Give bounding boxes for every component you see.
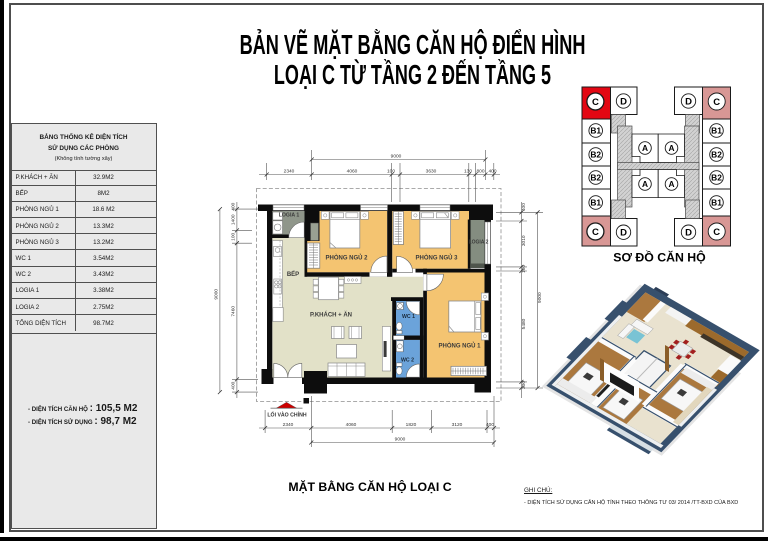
svg-text:PHÒNG NGỦ 3: PHÒNG NGỦ 3 <box>415 254 458 262</box>
svg-text:C: C <box>592 97 599 108</box>
svg-text:LOGIA 2: LOGIA 2 <box>469 240 489 246</box>
svg-text:400: 400 <box>231 381 237 389</box>
svg-text:400: 400 <box>486 422 494 428</box>
svg-text:A: A <box>642 179 648 189</box>
svg-text:P.KHÁCH + ĂN: P.KHÁCH + ĂN <box>310 312 352 319</box>
svg-text:A: A <box>642 143 648 153</box>
svg-text:1820: 1820 <box>406 422 417 428</box>
svg-text:LOGIA 1: LOGIA 1 <box>279 213 300 219</box>
svg-text:B1: B1 <box>590 198 601 208</box>
svg-text:100: 100 <box>387 169 395 175</box>
svg-text:WC 2: WC 2 <box>401 358 414 364</box>
svg-text:D: D <box>620 96 627 107</box>
svg-text:PHÒNG NGỦ 2: PHÒNG NGỦ 2 <box>325 254 368 262</box>
svg-text:PHÒNG NGỦ 1: PHÒNG NGỦ 1 <box>438 342 481 350</box>
svg-text:D: D <box>685 96 692 107</box>
svg-text:B2: B2 <box>590 150 601 160</box>
svg-text:4060: 4060 <box>346 422 357 428</box>
svg-text:7460: 7460 <box>231 306 237 317</box>
svg-text:WC 1: WC 1 <box>402 314 415 320</box>
svg-text:B2: B2 <box>711 150 722 160</box>
svg-text:100: 100 <box>231 232 237 240</box>
svg-text:C: C <box>713 227 720 238</box>
svg-text:A: A <box>668 143 674 153</box>
svg-text:1400: 1400 <box>231 214 237 225</box>
svg-text:800: 800 <box>476 169 484 175</box>
svg-text:300: 300 <box>521 381 527 389</box>
svg-text:400: 400 <box>488 169 496 175</box>
svg-text:A: A <box>668 179 674 189</box>
svg-text:C: C <box>713 97 720 108</box>
svg-text:5480: 5480 <box>521 318 527 329</box>
svg-text:9000: 9000 <box>395 437 406 443</box>
svg-text:BẾP: BẾP <box>287 271 299 278</box>
svg-text:3630: 3630 <box>426 169 437 175</box>
svg-text:B2: B2 <box>590 173 601 183</box>
svg-text:LỐI VÀO CHÍNH: LỐI VÀO CHÍNH <box>267 410 306 418</box>
svg-text:D: D <box>685 228 692 239</box>
svg-text:B1: B1 <box>590 126 601 136</box>
svg-text:100: 100 <box>521 265 527 273</box>
svg-text:9000: 9000 <box>391 154 402 160</box>
svg-text:3120: 3120 <box>452 422 463 428</box>
svg-text:3010: 3010 <box>521 235 527 246</box>
svg-text:C: C <box>592 227 599 238</box>
svg-text:D: D <box>620 228 627 239</box>
svg-text:130: 130 <box>464 169 472 175</box>
svg-text:B1: B1 <box>711 198 722 208</box>
svg-text:B2: B2 <box>711 173 722 183</box>
svg-text:400: 400 <box>521 203 527 211</box>
svg-text:B1: B1 <box>711 126 722 136</box>
svg-text:9000: 9000 <box>214 289 220 300</box>
svg-text:4060: 4060 <box>347 169 358 175</box>
svg-text:2340: 2340 <box>283 422 294 428</box>
svg-text:2340: 2340 <box>284 169 295 175</box>
svg-text:400: 400 <box>231 202 237 210</box>
